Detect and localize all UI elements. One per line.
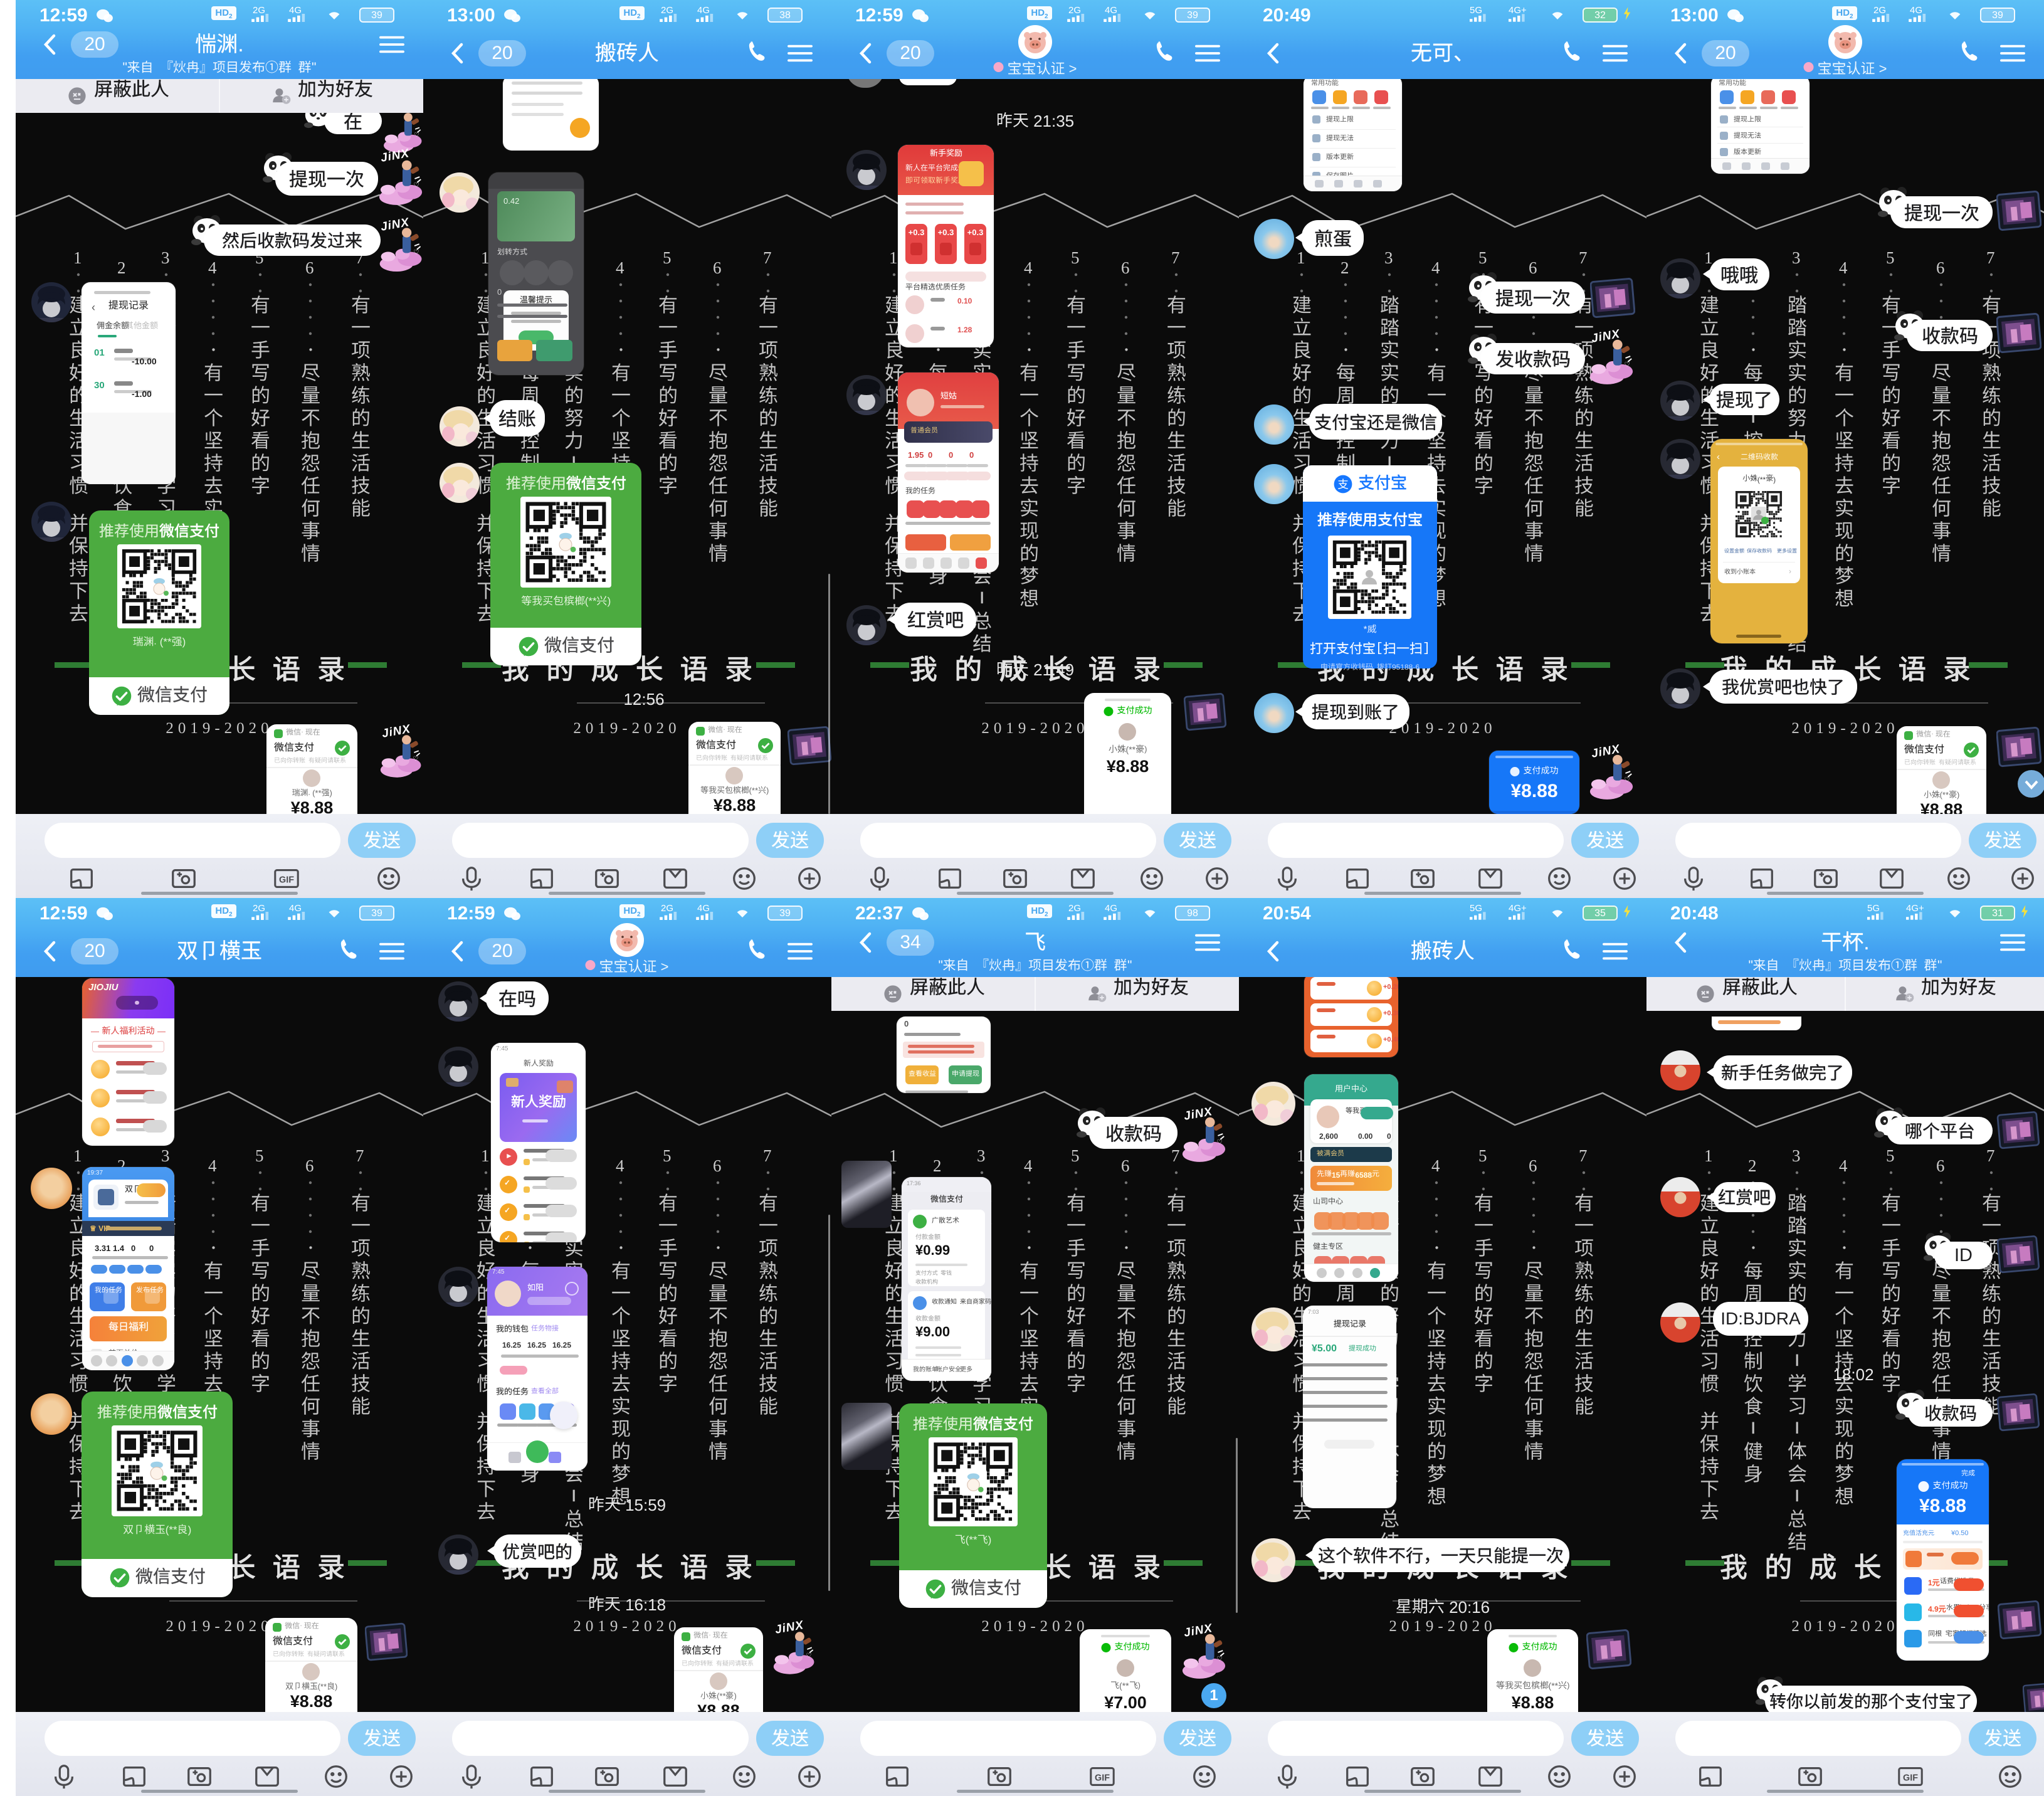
svg-text:·: · <box>300 1622 302 1629</box>
svg-text:♡: ♡ <box>1217 1656 1223 1663</box>
svg-text:GIF: GIF <box>1903 1773 1918 1783</box>
svg-text:·: · <box>723 726 725 732</box>
svg-text:♡: ♡ <box>806 1652 812 1659</box>
svg-text:♡: ♡ <box>414 132 419 139</box>
svg-text:♡: ♡ <box>413 248 419 256</box>
svg-text:.: . <box>308 788 310 796</box>
svg-text:♡: ♡ <box>1625 776 1631 784</box>
svg-text:GIF: GIF <box>279 875 294 885</box>
svg-text:.: . <box>154 637 156 647</box>
svg-text:·: · <box>709 1631 711 1638</box>
svg-text:♡: ♡ <box>413 756 419 763</box>
svg-text:♡: ♡ <box>1625 361 1631 369</box>
svg-text:♡: ♡ <box>1217 1139 1223 1146</box>
svg-text:支: 支 <box>1337 478 1349 490</box>
svg-text:♡: ♡ <box>414 182 420 189</box>
svg-text:·: · <box>1931 730 1934 737</box>
svg-text:GIF: GIF <box>1095 1773 1110 1783</box>
svg-text:·: · <box>301 728 303 735</box>
